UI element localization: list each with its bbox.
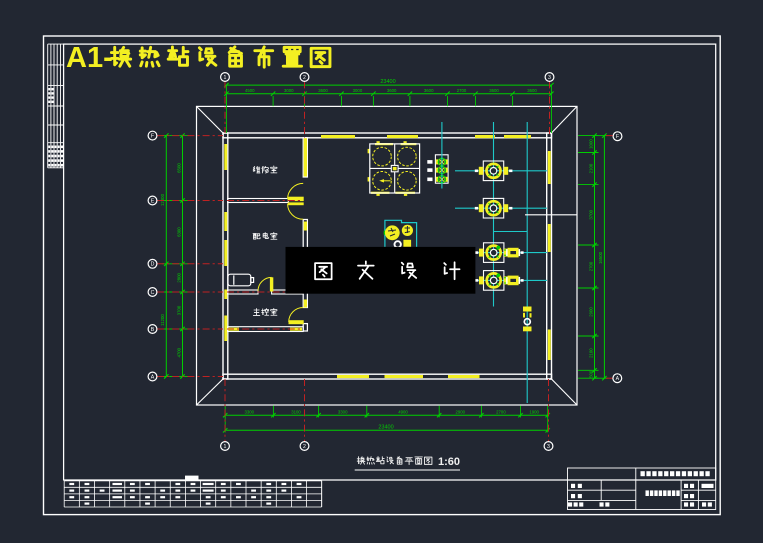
svg-text:6300: 6300: [176, 227, 181, 237]
svg-text:3700: 3700: [176, 305, 181, 315]
svg-text:A: A: [151, 374, 155, 380]
svg-text:16500: 16500: [598, 251, 603, 264]
svg-text:500: 500: [588, 370, 593, 378]
svg-text:F: F: [616, 134, 619, 140]
svg-text:4500: 4500: [245, 88, 255, 93]
svg-text:3600: 3600: [387, 88, 397, 93]
svg-text:3300: 3300: [338, 409, 348, 414]
svg-text:1: 1: [224, 75, 227, 81]
svg-text:1:60: 1:60: [438, 456, 460, 468]
svg-text:2900: 2900: [588, 307, 593, 317]
svg-text:2800: 2800: [176, 273, 181, 283]
svg-text:3: 3: [547, 444, 550, 450]
svg-text:3100: 3100: [291, 409, 301, 414]
svg-text:23400: 23400: [378, 425, 393, 431]
svg-text:2: 2: [303, 444, 306, 450]
svg-text:2700: 2700: [588, 261, 593, 271]
svg-text:D: D: [151, 262, 155, 268]
svg-text:1000: 1000: [588, 139, 593, 149]
svg-text:3: 3: [548, 75, 551, 81]
svg-text:A: A: [616, 376, 620, 382]
svg-text:C: C: [151, 290, 155, 296]
svg-text:12800: 12800: [160, 193, 165, 206]
svg-text:11200: 11200: [160, 314, 165, 326]
svg-text:3600: 3600: [318, 88, 328, 93]
svg-text:3600: 3600: [527, 88, 537, 93]
svg-text:A1-: A1-: [66, 42, 113, 74]
svg-text:2100: 2100: [588, 163, 593, 173]
svg-text:2900: 2900: [456, 409, 466, 414]
svg-text:3600: 3600: [424, 88, 434, 93]
svg-text:E: E: [151, 198, 155, 204]
svg-text:2100: 2100: [588, 348, 593, 358]
svg-text:6500: 6500: [176, 163, 181, 173]
svg-text:3300: 3300: [245, 409, 255, 414]
svg-text:3600: 3600: [489, 88, 499, 93]
svg-text:2700: 2700: [496, 409, 506, 414]
svg-text:1900: 1900: [529, 409, 539, 414]
svg-text:3700: 3700: [588, 209, 593, 219]
svg-text:4900: 4900: [398, 409, 408, 414]
svg-text:B: B: [151, 327, 155, 333]
svg-text:3000: 3000: [284, 88, 294, 93]
svg-text:F: F: [151, 134, 154, 140]
svg-text:2700: 2700: [457, 88, 467, 93]
svg-text:1: 1: [224, 444, 227, 450]
svg-text:2: 2: [303, 75, 306, 81]
svg-text:4700: 4700: [176, 347, 181, 357]
svg-text:23400: 23400: [380, 79, 395, 85]
svg-text:3000: 3000: [353, 88, 363, 93]
